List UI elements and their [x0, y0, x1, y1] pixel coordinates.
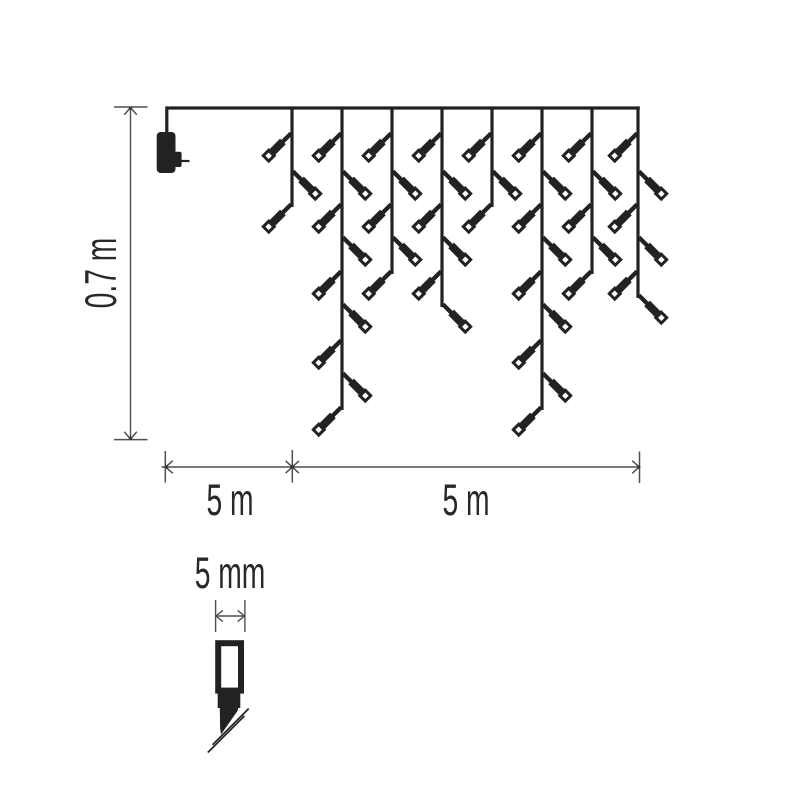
svg-text:5 mm: 5 mm: [195, 547, 266, 597]
svg-text:5 m: 5 m: [442, 474, 489, 524]
svg-text:0.7 m: 0.7 m: [75, 238, 125, 309]
svg-text:5 m: 5 m: [206, 474, 253, 524]
